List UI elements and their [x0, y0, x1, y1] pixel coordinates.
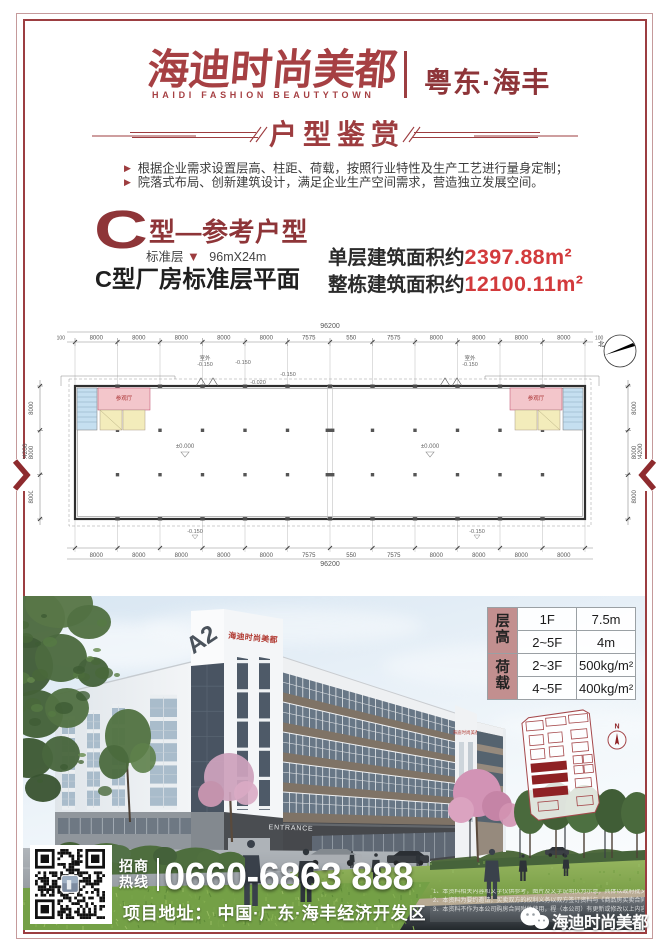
svg-text:±0.000: ±0.000 [176, 444, 195, 450]
svg-text:-0.150: -0.150 [187, 529, 203, 535]
svg-text:-0.150: -0.150 [469, 529, 485, 535]
svg-text:室外: 室外 [199, 354, 211, 362]
svg-text:7575: 7575 [302, 553, 316, 559]
svg-text:海迪时尚美都: 海迪时尚美都 [453, 729, 480, 736]
svg-text:96200: 96200 [320, 323, 340, 330]
svg-text:-0.150: -0.150 [197, 362, 213, 368]
svg-text:参观厅: 参观厅 [116, 394, 133, 402]
svg-text:24200: 24200 [22, 443, 29, 461]
svg-text:8000: 8000 [217, 336, 231, 342]
svg-text:8000: 8000 [29, 445, 35, 459]
svg-text:8000: 8000 [132, 336, 146, 342]
svg-text:24200: 24200 [637, 443, 644, 461]
svg-text:100: 100 [57, 336, 66, 342]
svg-text:7575: 7575 [387, 336, 401, 342]
svg-text:8000: 8000 [515, 336, 529, 342]
svg-text:8000: 8000 [175, 553, 189, 559]
svg-text:参观厅: 参观厅 [528, 394, 545, 402]
svg-text:室外: 室外 [464, 354, 476, 362]
svg-text:8000: 8000 [472, 336, 486, 342]
svg-text:8000: 8000 [90, 553, 104, 559]
svg-text:8000: 8000 [515, 553, 529, 559]
svg-text:8000: 8000 [29, 401, 35, 415]
svg-text:8000: 8000 [632, 401, 638, 415]
svg-text:8000: 8000 [29, 490, 35, 504]
svg-text:-0.150: -0.150 [235, 360, 251, 366]
svg-text:8000: 8000 [132, 553, 146, 559]
svg-text:550: 550 [346, 336, 357, 342]
svg-text:7575: 7575 [387, 553, 401, 559]
svg-text:北: 北 [598, 340, 605, 348]
svg-text:8000: 8000 [632, 490, 638, 504]
svg-text:-0.150: -0.150 [462, 362, 478, 368]
svg-text:8000: 8000 [217, 553, 231, 559]
svg-text:8000: 8000 [175, 336, 189, 342]
svg-text:550: 550 [346, 553, 357, 559]
svg-text:-0.150: -0.150 [280, 372, 296, 378]
svg-text:96200: 96200 [320, 561, 340, 568]
svg-text:±0.000: ±0.000 [421, 444, 440, 450]
svg-text:-0.020: -0.020 [250, 380, 266, 386]
svg-text:8000: 8000 [557, 553, 571, 559]
svg-text:8000: 8000 [260, 336, 274, 342]
svg-text:8000: 8000 [557, 336, 571, 342]
svg-text:8000: 8000 [430, 553, 444, 559]
svg-text:8000: 8000 [472, 553, 486, 559]
svg-text:7575: 7575 [302, 336, 316, 342]
svg-text:8000: 8000 [90, 336, 104, 342]
svg-text:8000: 8000 [260, 553, 274, 559]
svg-text:8000: 8000 [430, 336, 444, 342]
svg-text:N: N [614, 724, 619, 731]
